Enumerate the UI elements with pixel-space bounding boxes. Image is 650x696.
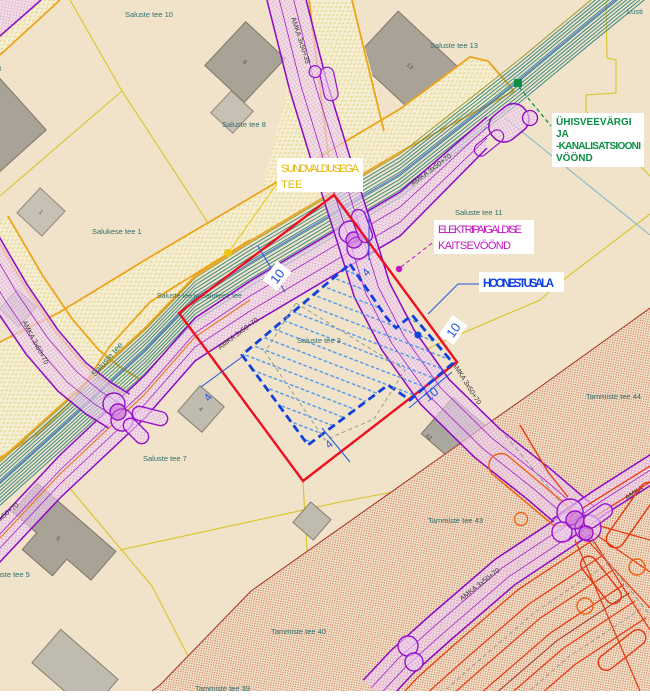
svg-text:SUNDVALDUSEGA: SUNDVALDUSEGA bbox=[281, 163, 360, 175]
svg-text:Saluste tee 8: Saluste tee 8 bbox=[222, 120, 266, 129]
svg-text:Saluste tee 7: Saluste tee 7 bbox=[143, 454, 187, 463]
svg-text:Saluste tee 11: Saluste tee 11 bbox=[455, 208, 502, 217]
svg-text:Saluste tee 3: Saluste tee 3 bbox=[297, 336, 341, 345]
svg-text:Tammiste tee 39: Tammiste tee 39 bbox=[195, 684, 250, 691]
svg-text:-KANALISATSIOONI: -KANALISATSIOONI bbox=[556, 141, 641, 152]
svg-text:Tammiste tee 44: Tammiste tee 44 bbox=[586, 392, 641, 401]
svg-text:ÜHISVEEVÄRGI: ÜHISVEEVÄRGI bbox=[556, 115, 632, 128]
svg-text:TEE: TEE bbox=[281, 179, 302, 191]
svg-text:Saluste tee 10: Saluste tee 10 bbox=[125, 10, 173, 19]
svg-text:Tammiste tee 40: Tammiste tee 40 bbox=[271, 627, 326, 636]
svg-text:VÖÖND: VÖÖND bbox=[556, 151, 593, 164]
svg-text:Saluste tee 13: Saluste tee 13 bbox=[430, 41, 478, 50]
svg-text:Saluste tee 5: Saluste tee 5 bbox=[0, 570, 30, 579]
svg-text:HOONESTUSALA: HOONESTUSALA bbox=[483, 278, 554, 290]
svg-text:KAITSEVÖÖND: KAITSEVÖÖND bbox=[438, 240, 511, 252]
svg-text:Salukese tee 1: Salukese tee 1 bbox=[92, 227, 142, 236]
svg-text:Lusti: Lusti bbox=[627, 7, 643, 16]
svg-text:3: 3 bbox=[0, 64, 1, 73]
svg-text:JA: JA bbox=[556, 129, 569, 140]
svg-text:ELEKTRIPAIGALDISE: ELEKTRIPAIGALDISE bbox=[438, 224, 522, 236]
svg-text:Tammiste tee 43: Tammiste tee 43 bbox=[428, 516, 483, 525]
